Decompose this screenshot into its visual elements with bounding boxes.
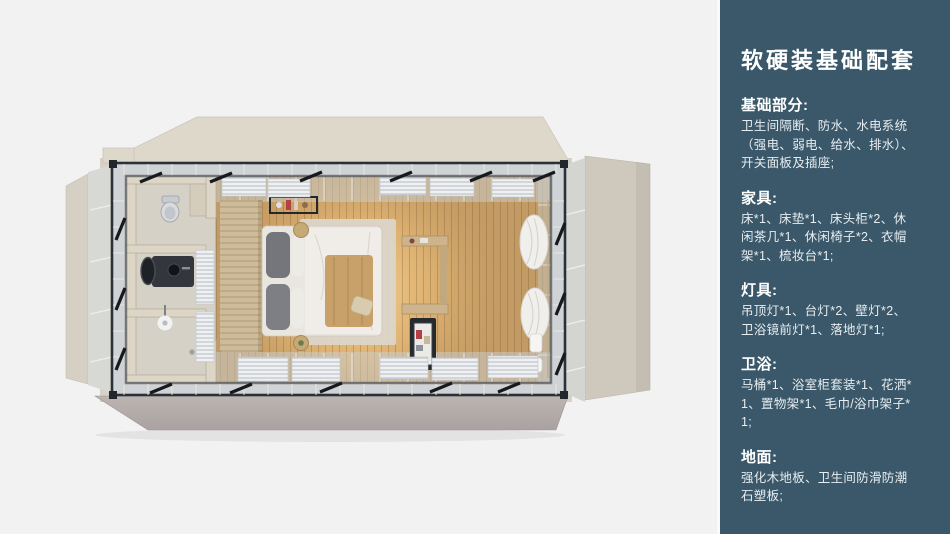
section-basics: 基础部分: 卫生间隔断、防水、水电系统（强电、弱电、给水、排水）、开关面板及插座… <box>741 96 936 173</box>
rattan-stool-top <box>294 223 309 238</box>
section-basics-heading: 基础部分: <box>741 96 936 115</box>
section-sanitary: 卫浴: 马桶*1、浴室柜套装*1、花洒*1、置物架*1、毛巾/浴巾架子*1; <box>741 355 936 432</box>
pillow-white-2 <box>291 288 304 328</box>
right-flap-shade <box>636 162 650 392</box>
toilet-fixture <box>161 196 179 222</box>
section-sanitary-body: 马桶*1、浴室柜套装*1、花洒*1、置物架*1、毛巾/浴巾架子*1; <box>741 376 919 432</box>
floorplan-render <box>0 0 717 534</box>
pillow-dark-2 <box>266 284 290 330</box>
section-furniture-heading: 家具: <box>741 189 936 208</box>
floorplan-area <box>0 0 717 534</box>
section-lighting: 灯具: 吊顶灯*1、台灯*2、壁灯*2、卫浴镜前灯*1、落地灯*1; <box>741 281 936 339</box>
curtain-2 <box>521 288 549 340</box>
vanity-mirror <box>141 258 155 285</box>
bottom-flap <box>95 396 568 430</box>
floor-drain <box>189 349 194 354</box>
info-panel: 软硬装基础配套 基础部分: 卫生间隔断、防水、水电系统（强电、弱电、给水、排水）… <box>717 0 950 534</box>
page: 软硬装基础配套 基础部分: 卫生间隔断、防水、水电系统（强电、弱电、给水、排水）… <box>0 0 950 534</box>
pillow-dark-1 <box>266 232 290 278</box>
section-furniture-body: 床*1、床垫*1、床头柜*2、休闲茶几*1、休闲椅子*2、衣帽架*1、梳妆台*1… <box>741 210 919 266</box>
curtain-1 <box>520 215 548 269</box>
headboard-wall-planks <box>220 200 262 352</box>
section-lighting-heading: 灯具: <box>741 281 936 300</box>
sink-basin <box>168 264 180 276</box>
pillow-white-1 <box>291 236 304 276</box>
louver-row-bottom <box>238 356 538 381</box>
left-glass-strip <box>88 165 112 393</box>
section-flooring: 地面: 强化木地板、卫生间防滑防潮石塑板; <box>741 448 936 506</box>
section-basics-body: 卫生间隔断、防水、水电系统（强电、弱电、给水、排水）、开关面板及插座; <box>741 117 919 173</box>
plant <box>298 340 304 346</box>
vanity-unit <box>141 256 194 287</box>
section-sanitary-heading: 卫浴: <box>741 355 936 374</box>
headboard-wall-shadow <box>258 200 262 352</box>
section-flooring-body: 强化木地板、卫生间防滑防潮石塑板; <box>741 469 919 506</box>
throw-blanket <box>325 255 373 327</box>
right-glass-strip <box>565 158 585 402</box>
top-flap <box>104 117 570 163</box>
bathroom-storage-box <box>190 184 206 216</box>
top-flap-step <box>103 148 134 163</box>
section-flooring-heading: 地面: <box>741 448 936 467</box>
section-furniture: 家具: 床*1、床垫*1、床头柜*2、休闲茶几*1、休闲椅子*2、衣帽架*1、梳… <box>741 189 936 266</box>
bed <box>262 226 382 336</box>
section-lighting-body: 吊顶灯*1、台灯*2、壁灯*2、卫浴镜前灯*1、落地灯*1; <box>741 302 919 339</box>
left-flap <box>66 174 88 384</box>
faucet <box>182 267 190 269</box>
panel-title: 软硬装基础配套 <box>741 46 936 76</box>
